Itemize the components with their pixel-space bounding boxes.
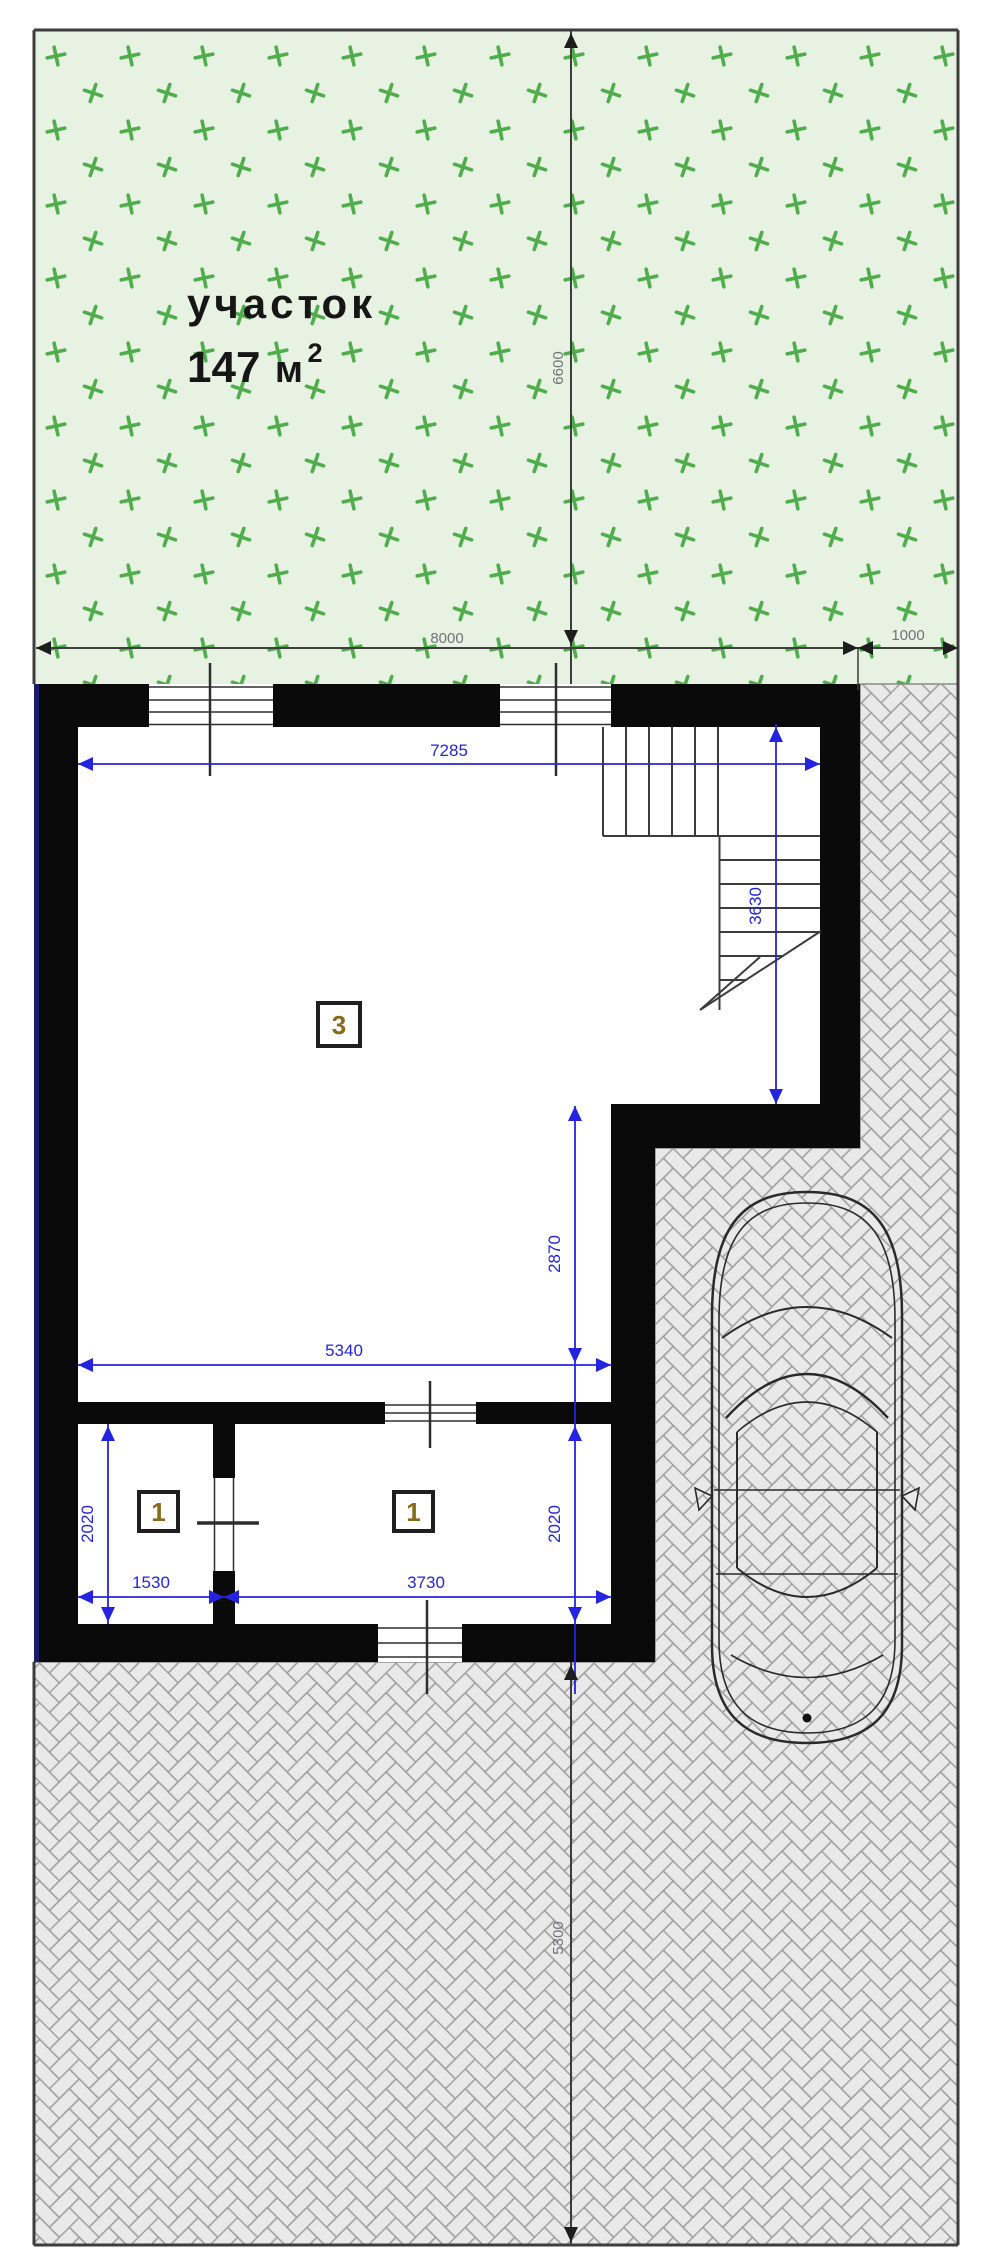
dim-label-3730: 3730 — [407, 1573, 445, 1592]
wall-bottom — [36, 1624, 655, 1662]
room-tag-right-number: 1 — [406, 1497, 420, 1527]
stair-break-line — [700, 957, 760, 1010]
room-tag-hall-number: 3 — [332, 1010, 346, 1040]
dim-label-3630: 3630 — [746, 887, 765, 925]
wall-interior — [78, 1402, 611, 1424]
room-tag-right: 1 — [394, 1492, 433, 1531]
site-plan: 7285 3630 2870 2020 5340 2020 1530 3730 … — [0, 0, 1000, 2260]
plot-area-value: 147 — [187, 343, 260, 392]
plot-title-label: участок — [187, 280, 376, 327]
wall-right-upper — [820, 684, 860, 1148]
wall-right-lower — [611, 1104, 655, 1662]
stairs — [603, 727, 821, 1010]
room-tag-left: 1 — [139, 1492, 178, 1531]
room-tags: 3 1 1 — [139, 1003, 433, 1531]
boundary-navy-line — [34, 684, 39, 1662]
plot-area-exponent: 2 — [307, 338, 322, 368]
dim-3630 — [769, 724, 783, 1104]
dim-label-8000: 8000 — [430, 630, 463, 647]
dim-label-6600: 6600 — [550, 351, 567, 384]
dim-label-1000: 1000 — [891, 627, 924, 644]
dim-2020-left — [101, 1424, 115, 1624]
dim-5340 — [78, 1358, 611, 1372]
dim-label-5300: 5300 — [550, 1921, 567, 1954]
dim-label-5340: 5340 — [325, 1341, 363, 1360]
dim-label-1530: 1530 — [132, 1573, 170, 1592]
dim-label-2020-right: 2020 — [545, 1505, 564, 1543]
openings — [149, 684, 611, 1662]
stair-break-line — [700, 931, 821, 1010]
dim-2870 — [568, 1106, 582, 1694]
wall-step — [655, 1104, 860, 1148]
dim-1530-3730 — [78, 1590, 611, 1604]
site-plan-drawing: 7285 3630 2870 2020 5340 2020 1530 3730 … — [0, 0, 1000, 2260]
room-tag-left-number: 1 — [151, 1497, 165, 1527]
plot-area-unit: м — [275, 349, 303, 391]
wall-left — [36, 684, 78, 1662]
paving-area — [34, 684, 958, 2245]
dim-label-2870: 2870 — [545, 1235, 564, 1273]
room-tag-hall: 3 — [318, 1003, 360, 1046]
grass-area — [34, 30, 958, 684]
dim-label-2020-left: 2020 — [78, 1505, 97, 1543]
dim-label-7285: 7285 — [430, 741, 468, 760]
